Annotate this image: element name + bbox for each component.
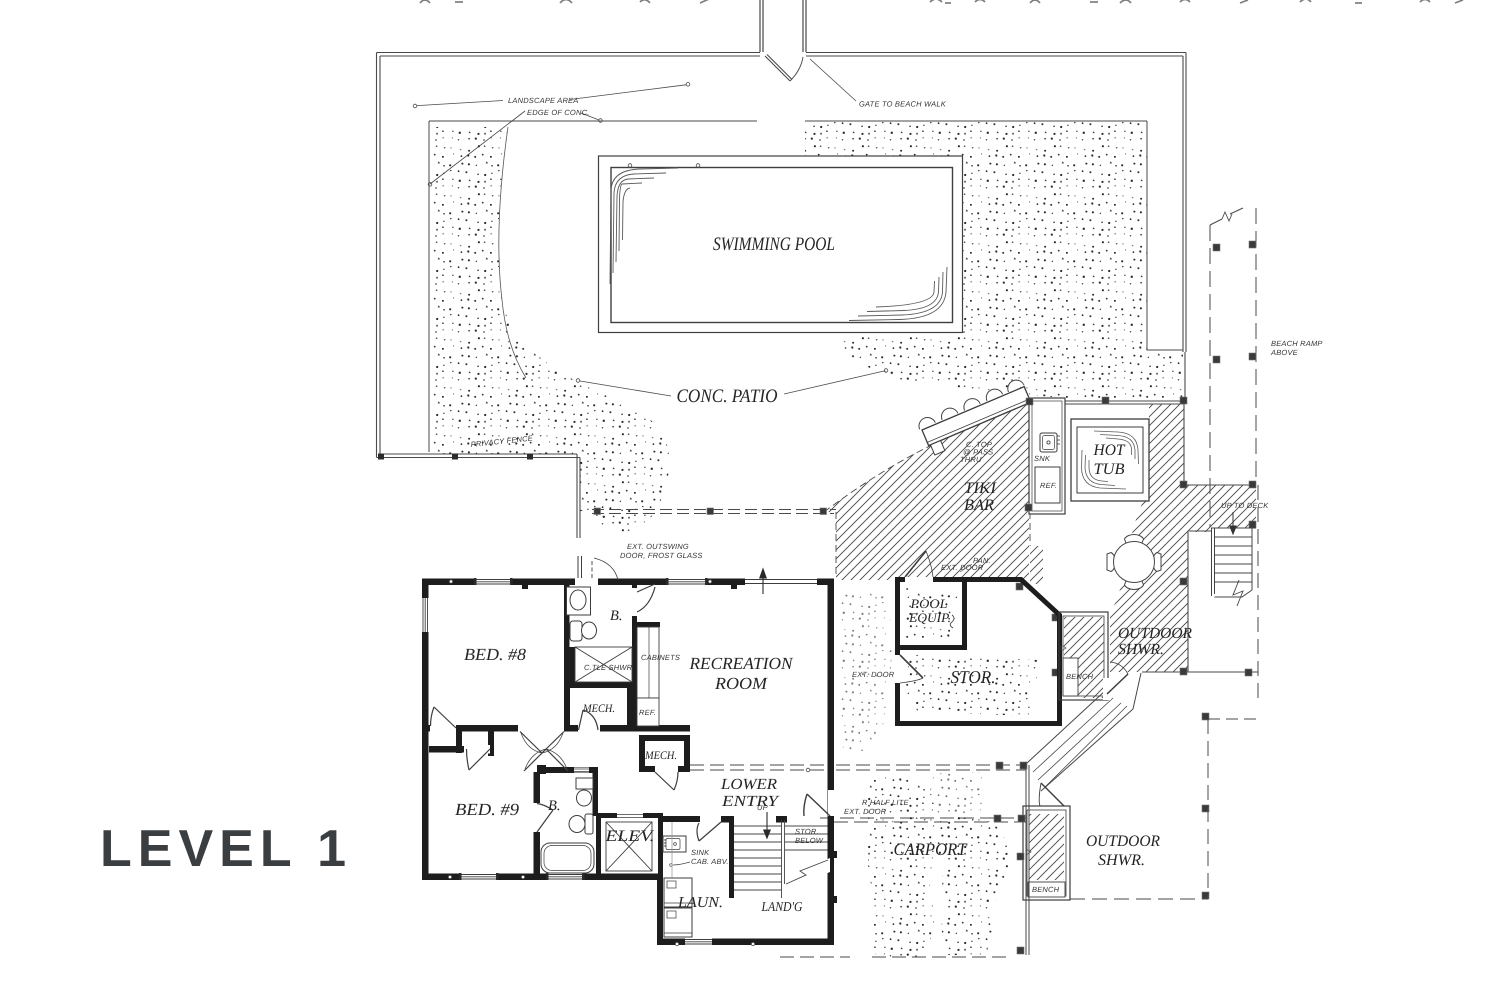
svg-text:HOT: HOT — [1093, 442, 1126, 459]
svg-text:CABINETS: CABINETS — [641, 653, 680, 662]
svg-text:TIKI: TIKI — [964, 480, 997, 497]
svg-text:REF.: REF. — [1040, 481, 1057, 490]
svg-text:SWIMMING POOL: SWIMMING POOL — [713, 234, 835, 255]
svg-text:GATE TO BEACH WALK: GATE TO BEACH WALK — [859, 100, 947, 109]
svg-text:UP: UP — [757, 803, 768, 812]
svg-text:DOOR, FROST GLASS: DOOR, FROST GLASS — [620, 551, 703, 560]
svg-text:CARPORT: CARPORT — [894, 839, 968, 859]
svg-text:LANDSCAPE AREA: LANDSCAPE AREA — [508, 96, 578, 105]
svg-text:EXT. OUTSWING: EXT. OUTSWING — [627, 542, 689, 551]
svg-text:EDGE OF CONC.: EDGE OF CONC. — [527, 108, 589, 117]
svg-text:R HALF LITE: R HALF LITE — [862, 798, 909, 807]
svg-text:CAB. ABV.: CAB. ABV. — [691, 857, 729, 866]
svg-text:STOR.: STOR. — [951, 667, 996, 687]
svg-text:MECH.: MECH. — [582, 703, 615, 715]
svg-text:BED. #9: BED. #9 — [455, 800, 520, 819]
svg-text:EQUIP.: EQUIP. — [908, 610, 951, 625]
svg-text:LEVEL 1: LEVEL 1 — [100, 820, 352, 878]
svg-text:CONC. PATIO: CONC. PATIO — [677, 386, 778, 407]
svg-text:BENCH: BENCH — [1032, 885, 1060, 894]
svg-text:BED. #8: BED. #8 — [464, 645, 527, 664]
svg-text:EXT. DOOR: EXT. DOOR — [844, 807, 887, 816]
svg-text:BELOW: BELOW — [795, 836, 824, 845]
svg-text:REF.: REF. — [639, 708, 656, 717]
svg-text:LAUN.: LAUN. — [677, 895, 723, 911]
svg-text:TUB: TUB — [1094, 461, 1125, 478]
svg-text:B.: B. — [548, 798, 560, 814]
svg-text:SNK: SNK — [1034, 454, 1051, 463]
svg-text:SHWR.: SHWR. — [1118, 641, 1164, 658]
svg-text:C.TLE SHWR: C.TLE SHWR — [584, 663, 633, 672]
svg-text:BAR: BAR — [964, 497, 994, 514]
svg-text:ELEV.: ELEV. — [604, 828, 655, 845]
svg-text:B.: B. — [610, 608, 622, 624]
svg-text:OUTDOOR: OUTDOOR — [1118, 625, 1193, 642]
svg-text:ENTRY: ENTRY — [721, 793, 780, 810]
svg-text:STOR.: STOR. — [795, 827, 819, 836]
svg-text:SHWR.: SHWR. — [1098, 852, 1145, 869]
svg-text:LAND'G: LAND'G — [761, 899, 803, 914]
svg-text:LOWER: LOWER — [720, 776, 778, 793]
svg-text:ABOVE: ABOVE — [1270, 348, 1299, 357]
svg-text:OUTDOOR: OUTDOOR — [1086, 833, 1160, 850]
svg-text:UP TO DECK: UP TO DECK — [1221, 501, 1269, 510]
svg-text:RECREATION: RECREATION — [688, 654, 794, 673]
svg-text:BENCH: BENCH — [1066, 672, 1094, 681]
svg-text:PAN.: PAN. — [973, 556, 991, 565]
svg-text:THRU: THRU — [960, 455, 982, 464]
svg-text:ROOM: ROOM — [714, 674, 768, 693]
svg-text:SINK: SINK — [691, 848, 710, 857]
svg-text:POOL: POOL — [909, 596, 947, 611]
svg-text:BEACH RAMP: BEACH RAMP — [1271, 339, 1323, 348]
svg-text:MECH.: MECH. — [644, 750, 677, 762]
